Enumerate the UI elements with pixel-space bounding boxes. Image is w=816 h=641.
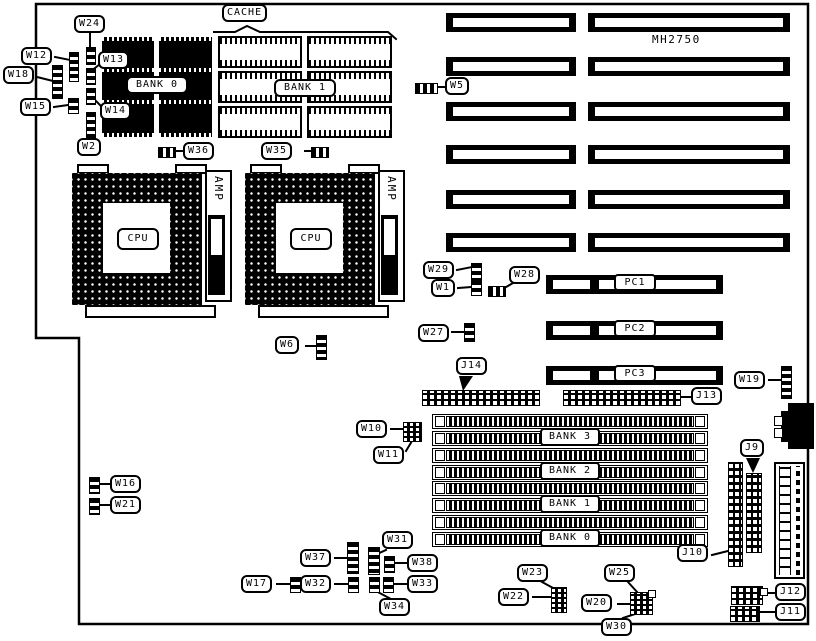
- simm-bank3-label: BANK 3: [540, 428, 600, 446]
- jumper-w12: [69, 52, 79, 82]
- simm-slot: [432, 515, 708, 530]
- jumper-label-w24: W24: [74, 15, 105, 33]
- simm-slot: BANK 0: [432, 532, 708, 547]
- simm-slot: [432, 481, 708, 496]
- power-connector: [774, 462, 805, 579]
- jumper-label-w30: W30: [601, 618, 632, 636]
- amp-brand-text: AMP: [212, 176, 225, 202]
- jumper-w31: [368, 547, 380, 575]
- jumper-w29: [471, 263, 482, 280]
- jumper-label-w18: W18: [3, 66, 34, 84]
- connector-j12: [731, 586, 763, 605]
- cache-chip: [307, 106, 392, 138]
- expansion-slot: [446, 190, 576, 209]
- expansion-slot: [446, 102, 576, 121]
- cache-chip: [218, 106, 302, 138]
- jumper-label-w27: W27: [418, 324, 449, 342]
- simm-bank0-label: BANK 0: [540, 529, 600, 547]
- amp-brand-text: AMP: [385, 176, 398, 202]
- simm-slot: [432, 414, 708, 429]
- jumper-w22-w23: [551, 587, 567, 613]
- jumper-w19: [781, 366, 792, 399]
- simm-slot: [432, 448, 708, 463]
- jumper-w32: [348, 577, 359, 593]
- connector-label-j9: J9: [740, 439, 764, 457]
- jumper-label-w10: W10: [356, 420, 387, 438]
- cache-label: CACHE: [222, 4, 267, 22]
- jumper-label-w20: W20: [581, 594, 612, 612]
- expansion-slot: [588, 233, 790, 252]
- dram-bank0-label: BANK 0: [126, 76, 188, 94]
- jumper-w14: [86, 88, 96, 105]
- jumper-label-w17: W17: [241, 575, 272, 593]
- pc2-slot: PC2: [546, 321, 723, 340]
- jumper-label-w33: W33: [407, 575, 438, 593]
- connector-label-j13: J13: [691, 387, 722, 405]
- cpu-2-label: CPU: [290, 228, 332, 250]
- jumper-label-w38: W38: [407, 554, 438, 572]
- jumper-w38: [384, 556, 395, 573]
- jumper-label-w13: W13: [98, 51, 129, 69]
- jumper-w2: [86, 112, 96, 140]
- pc1-slot-label: PC1: [614, 274, 656, 291]
- jumper-label-w31: W31: [382, 531, 413, 549]
- power-connector-pins: [779, 466, 791, 575]
- jumper-w27: [464, 323, 475, 342]
- connector-j10: [728, 462, 743, 567]
- jumper-w10-w11: [403, 422, 422, 442]
- jumper-w16: [89, 477, 100, 494]
- simm-slot: BANK 2: [432, 465, 708, 480]
- simm-slot: BANK 3: [432, 431, 708, 446]
- cache-bank1-label: BANK 1: [274, 79, 336, 97]
- keyboard-connector: [788, 403, 814, 449]
- jumper-w35: [311, 147, 329, 158]
- power-connector-pins: [796, 466, 800, 575]
- pc1-slot: PC1: [546, 275, 723, 294]
- connector-label-j11: J11: [775, 603, 806, 621]
- socket-lever: [211, 219, 222, 255]
- jumper-label-w23: W23: [517, 564, 548, 582]
- slot-key-gap: [590, 366, 599, 385]
- jumper-label-w32: W32: [300, 575, 331, 593]
- cache-chip: [218, 36, 302, 68]
- jumper-label-w36: W36: [183, 142, 214, 160]
- jumper-w34: [369, 577, 380, 593]
- simm-bank2-label: BANK 2: [540, 462, 600, 480]
- board-model-text: MH2750: [652, 33, 701, 46]
- connector-j9: [746, 473, 762, 553]
- jumper-w18: [52, 65, 63, 99]
- jumper-label-w15: W15: [20, 98, 51, 116]
- jumper-w21: [89, 498, 100, 515]
- keyboard-connector-pin: [774, 416, 783, 426]
- connector-j13: [563, 390, 681, 406]
- jumper-pin: [648, 590, 656, 598]
- cache-chip: [307, 36, 392, 68]
- jumper-label-w1: W1: [431, 279, 455, 297]
- jumper-w28: [488, 286, 506, 297]
- jumper-w6: [316, 335, 327, 360]
- keyboard-connector-pin: [774, 428, 783, 438]
- expansion-slot: [588, 57, 790, 76]
- jumper-label-w12: W12: [21, 47, 52, 65]
- socket-lever: [384, 219, 395, 255]
- pc3-slot-label: PC3: [614, 365, 656, 382]
- jumper-w5: [415, 83, 438, 94]
- jumper-label-w21: W21: [110, 496, 141, 514]
- zif-handle: [258, 305, 389, 318]
- jumper-label-w11: W11: [373, 446, 404, 464]
- connector-j14: [422, 390, 540, 406]
- pc3-slot: PC3: [546, 366, 723, 385]
- jumper-label-w14: W14: [100, 102, 131, 120]
- expansion-slot: [446, 13, 576, 32]
- jumper-w33: [383, 577, 394, 593]
- jumper-label-w16: W16: [110, 475, 141, 493]
- jumper-label-w29: W29: [423, 261, 454, 279]
- jumper-label-w25: W25: [604, 564, 635, 582]
- jumper-w36: [158, 147, 176, 158]
- slot-key-gap: [590, 321, 599, 340]
- expansion-slot: [588, 145, 790, 164]
- motherboard-diagram: BANK 0 BANK 1 CACHE W24 W12 W18 W15 W13 …: [0, 0, 816, 641]
- jumper-label-w34: W34: [379, 598, 410, 616]
- jumper-label-w22: W22: [498, 588, 529, 606]
- jumper-w15: [68, 98, 79, 114]
- expansion-slot: [588, 102, 790, 121]
- jumper-w1: [471, 280, 482, 296]
- expansion-slot: [446, 145, 576, 164]
- expansion-slot: [446, 233, 576, 252]
- jumper-label-w28: W28: [509, 266, 540, 284]
- jumper-w24: [86, 47, 96, 65]
- connector-label-j14: J14: [456, 357, 487, 375]
- jumper-label-w5: W5: [445, 77, 469, 95]
- jumper-label-w6: W6: [275, 336, 299, 354]
- jumper-w13: [86, 68, 96, 85]
- expansion-slot: [588, 190, 790, 209]
- jumper-label-w19: W19: [734, 371, 765, 389]
- connector-label-j12: J12: [775, 583, 806, 601]
- connector-j11: [730, 606, 760, 622]
- simm-slot: BANK 1: [432, 498, 708, 513]
- jumper-label-w37: W37: [300, 549, 331, 567]
- pc2-slot-label: PC2: [614, 320, 656, 337]
- connector-label-j10: J10: [677, 544, 708, 562]
- jumper-label-w35: W35: [261, 142, 292, 160]
- connector-j12-pin: [760, 588, 768, 596]
- cpu-1-label: CPU: [117, 228, 159, 250]
- simm-bank1-label: BANK 1: [540, 495, 600, 513]
- expansion-slot: [588, 13, 790, 32]
- slot-key-gap: [590, 275, 599, 294]
- expansion-slot: [446, 57, 576, 76]
- zif-handle: [85, 305, 216, 318]
- jumper-label-w2: W2: [77, 138, 101, 156]
- jumper-w37: [347, 542, 359, 574]
